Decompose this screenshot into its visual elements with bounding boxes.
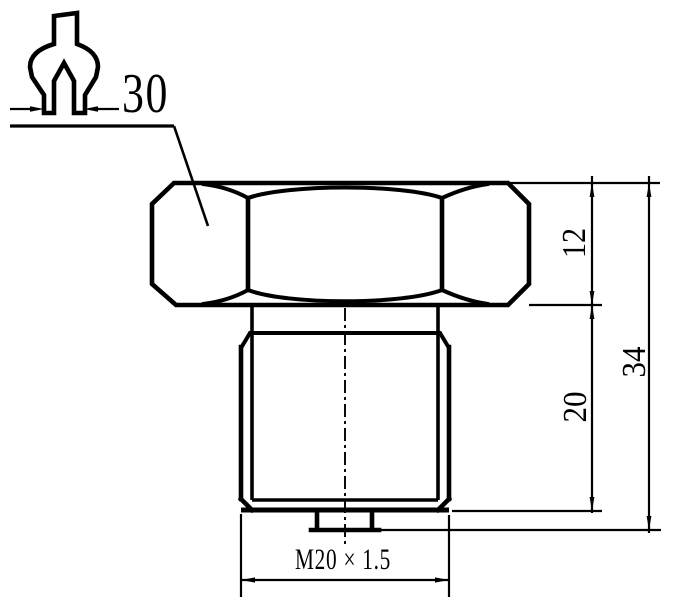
thread-length-label: 20 xyxy=(557,392,594,423)
bolt-head xyxy=(152,183,529,305)
total-length-dimension: 34 xyxy=(616,176,653,533)
arrowhead-up-icon xyxy=(590,305,595,319)
head-outline xyxy=(152,183,529,305)
arrowhead-up-icon xyxy=(590,183,595,197)
head-arc-top-left xyxy=(203,184,248,198)
arrowhead-left-icon xyxy=(241,577,255,582)
drawing-canvas: 30 xyxy=(0,0,688,600)
head-height-label: 12 xyxy=(556,228,593,258)
total-length-label: 34 xyxy=(616,347,653,378)
head-arc-bottom-middle xyxy=(248,290,442,301)
arrowhead-up-icon xyxy=(647,183,652,197)
arrowhead-down-icon xyxy=(590,497,595,511)
head-arc-bottom-left xyxy=(203,290,248,304)
leader-line xyxy=(174,126,208,226)
arrowhead-down-icon xyxy=(647,516,652,530)
thread-length-dimension: 20 xyxy=(557,305,594,511)
head-arc-bottom-right xyxy=(442,290,488,304)
head-arc-top-middle xyxy=(248,188,442,199)
wrench-size-label: 30 xyxy=(122,63,169,125)
wrench-icon xyxy=(30,13,98,113)
arrowhead-down-icon xyxy=(590,291,595,305)
thread-spec-label: M20 × 1.5 xyxy=(295,543,391,576)
head-arc-top-right xyxy=(442,184,488,198)
bolt-drawing-svg: 30 xyxy=(0,0,688,600)
arrowhead-right-icon xyxy=(435,577,449,582)
right-dimensions: 12 20 34 xyxy=(379,176,661,533)
head-height-dimension: 12 xyxy=(556,176,594,513)
